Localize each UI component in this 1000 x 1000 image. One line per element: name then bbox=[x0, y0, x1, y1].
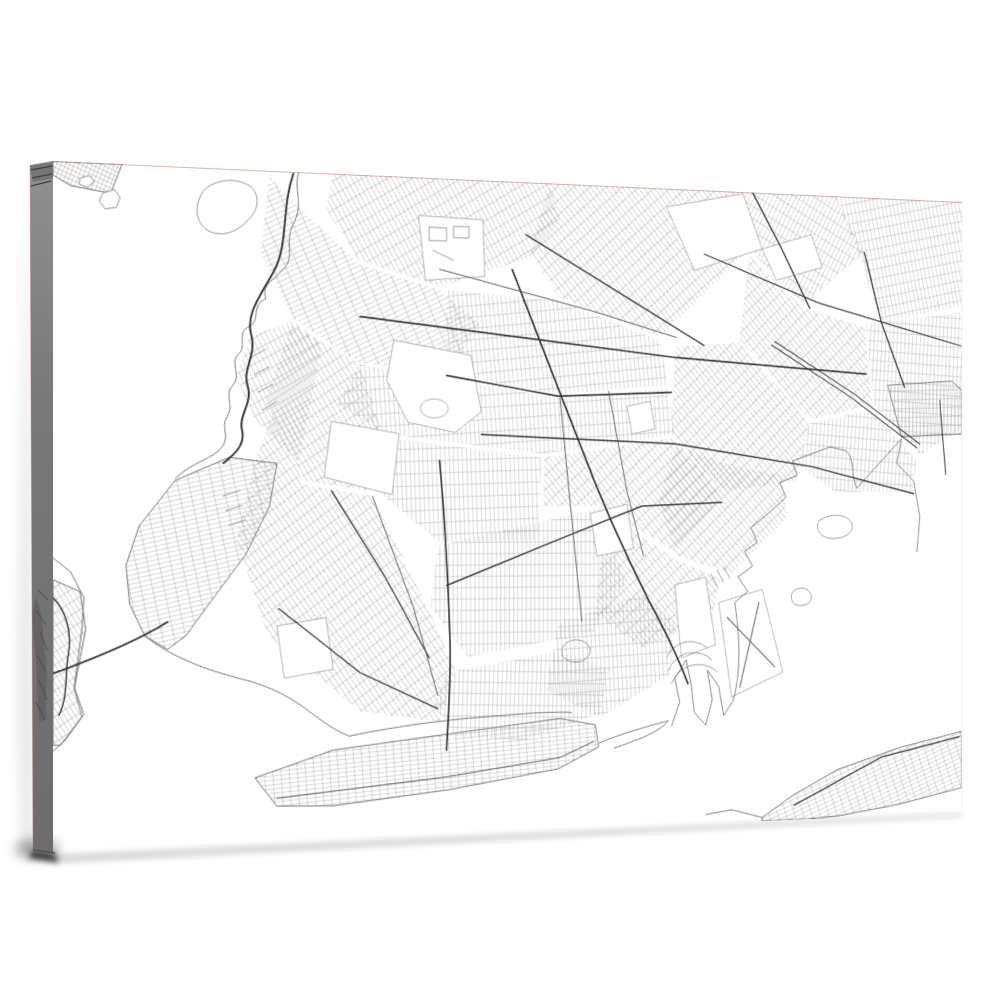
wrapped-print-on-edge bbox=[30, 162, 53, 722]
canvas-print-mockup bbox=[0, 0, 1000, 1000]
gerritsen-coast bbox=[672, 659, 734, 726]
sheepshead-inlet bbox=[599, 721, 669, 749]
dyker-park bbox=[277, 617, 333, 678]
district-rockaway bbox=[762, 731, 961, 821]
governors-island bbox=[197, 179, 257, 235]
canvas-side-edge bbox=[30, 161, 53, 853]
district-coney-island bbox=[255, 717, 599, 809]
rockaway-inner bbox=[706, 808, 762, 820]
navy-yard bbox=[419, 215, 485, 282]
district-flatbush bbox=[380, 437, 542, 542]
ruffle-bar bbox=[817, 515, 852, 538]
prospect-lake bbox=[420, 399, 448, 418]
floyd-bennett-field bbox=[719, 589, 783, 697]
lincoln-terrace bbox=[627, 401, 655, 435]
map-canvas-face bbox=[53, 161, 962, 853]
street-map-artwork bbox=[53, 161, 962, 853]
street-grid-districts bbox=[53, 161, 962, 853]
canarsie-pol bbox=[791, 588, 811, 606]
